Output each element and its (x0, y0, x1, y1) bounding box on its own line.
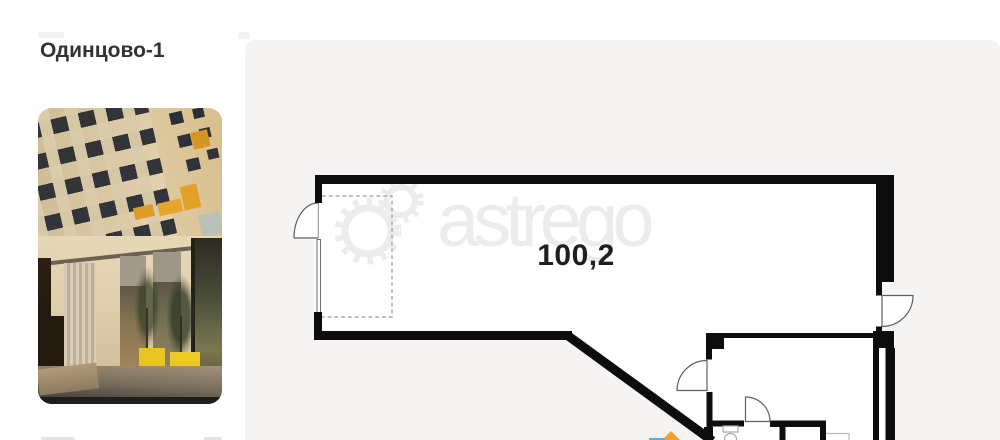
svg-text:100,2: 100,2 (537, 239, 615, 272)
